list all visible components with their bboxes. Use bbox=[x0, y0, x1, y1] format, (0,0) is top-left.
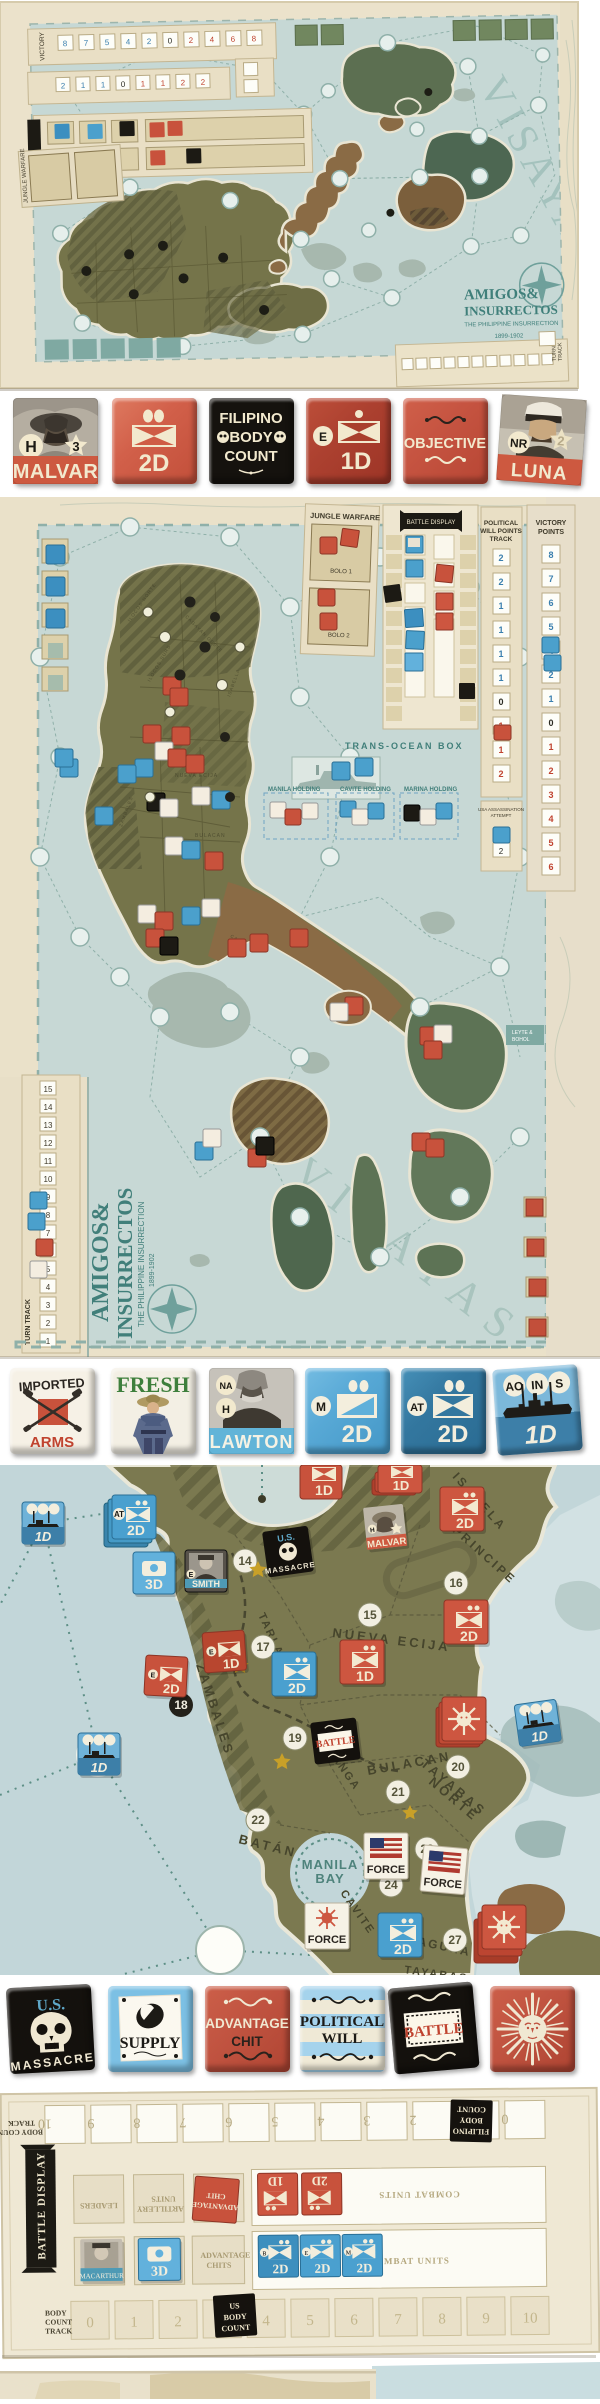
svg-text:BAY: BAY bbox=[315, 1871, 344, 1886]
svg-text:7: 7 bbox=[84, 39, 89, 48]
svg-text:2D: 2D bbox=[163, 1681, 180, 1697]
svg-text:1: 1 bbox=[81, 81, 86, 90]
svg-text:3D: 3D bbox=[145, 1576, 163, 1592]
svg-text:10: 10 bbox=[522, 2311, 537, 2327]
svg-text:AO: AO bbox=[505, 1379, 524, 1394]
svg-text:FRESH: FRESH bbox=[116, 1372, 189, 1397]
svg-text:BODY COUNT: BODY COUNT bbox=[0, 2128, 43, 2138]
svg-text:18: 18 bbox=[174, 1698, 188, 1712]
svg-text:AT: AT bbox=[410, 1402, 424, 1414]
svg-text:MASSACRE: MASSACRE bbox=[10, 2050, 95, 2074]
svg-text:TRACK: TRACK bbox=[45, 2326, 72, 2335]
svg-text:6: 6 bbox=[231, 35, 236, 44]
svg-text:2D: 2D bbox=[438, 1421, 469, 1448]
svg-text:BODY: BODY bbox=[459, 2116, 483, 2126]
svg-text:COUNT: COUNT bbox=[45, 2317, 72, 2326]
svg-text:2: 2 bbox=[498, 553, 503, 563]
svg-text:2D: 2D bbox=[288, 1680, 306, 1696]
svg-text:2: 2 bbox=[174, 2314, 182, 2330]
svg-text:BOHOL: BOHOL bbox=[512, 1037, 530, 1043]
svg-text:2: 2 bbox=[499, 847, 504, 856]
svg-text:BULACAN: BULACAN bbox=[195, 833, 226, 839]
svg-text:M: M bbox=[316, 1400, 326, 1414]
svg-text:2D: 2D bbox=[127, 1522, 145, 1538]
svg-text:19: 19 bbox=[288, 1731, 302, 1745]
svg-text:9: 9 bbox=[482, 2311, 490, 2327]
svg-text:1: 1 bbox=[498, 745, 503, 755]
svg-text:OBJECTIVE: OBJECTIVE bbox=[404, 436, 487, 452]
svg-text:2: 2 bbox=[409, 2112, 416, 2127]
svg-text:2D: 2D bbox=[356, 2260, 372, 2275]
svg-text:8: 8 bbox=[133, 2115, 140, 2130]
svg-text:ARMS: ARMS bbox=[30, 1434, 74, 1451]
svg-text:21: 21 bbox=[391, 1785, 405, 1799]
svg-text:0: 0 bbox=[501, 2111, 508, 2126]
svg-text:2: 2 bbox=[189, 36, 194, 45]
svg-text:COUNT: COUNT bbox=[456, 2105, 486, 2115]
svg-text:0: 0 bbox=[86, 2315, 94, 2331]
svg-text:3: 3 bbox=[363, 2112, 370, 2127]
svg-text:1: 1 bbox=[498, 649, 503, 659]
svg-text:POINTS: POINTS bbox=[538, 529, 564, 536]
svg-text:0: 0 bbox=[498, 697, 503, 707]
svg-text:ADVANTAGE: ADVANTAGE bbox=[205, 2016, 289, 2031]
svg-text:2: 2 bbox=[181, 78, 186, 87]
svg-text:1D: 1D bbox=[268, 2174, 284, 2189]
svg-text:CHIT: CHIT bbox=[206, 2191, 226, 2201]
svg-text:TRACK: TRACK bbox=[557, 342, 564, 361]
svg-text:MARINA HOLDING: MARINA HOLDING bbox=[404, 787, 457, 793]
svg-text:1D: 1D bbox=[530, 1728, 549, 1745]
svg-text:1: 1 bbox=[141, 79, 146, 88]
svg-text:INSURRECTOS: INSURRECTOS bbox=[113, 1188, 137, 1339]
svg-text:INSURRECTOS: INSURRECTOS bbox=[464, 302, 558, 319]
svg-text:H: H bbox=[25, 439, 37, 456]
svg-text:2D: 2D bbox=[456, 1515, 474, 1531]
svg-text:1D: 1D bbox=[524, 1420, 558, 1450]
svg-text:8: 8 bbox=[46, 1211, 51, 1220]
svg-text:NA: NA bbox=[220, 1381, 233, 1391]
svg-text:5: 5 bbox=[271, 2113, 278, 2128]
svg-text:CHITS: CHITS bbox=[206, 2261, 232, 2270]
svg-text:FORCE: FORCE bbox=[308, 1934, 347, 1946]
svg-text:BOLO 2: BOLO 2 bbox=[328, 633, 351, 640]
svg-text:BATTLE DISPLAY: BATTLE DISPLAY bbox=[407, 520, 456, 526]
svg-text:1: 1 bbox=[130, 2315, 138, 2331]
svg-text:NUEVA ECIJA: NUEVA ECIJA bbox=[175, 773, 218, 779]
svg-text:AMIGOS&: AMIGOS& bbox=[464, 286, 539, 303]
svg-text:1: 1 bbox=[498, 601, 503, 611]
svg-text:U.S.: U.S. bbox=[36, 1996, 65, 2014]
svg-text:4: 4 bbox=[317, 2113, 324, 2128]
svg-text:MANILA: MANILA bbox=[302, 1857, 359, 1872]
svg-text:E: E bbox=[319, 430, 327, 444]
svg-text:8: 8 bbox=[548, 550, 553, 560]
svg-text:15: 15 bbox=[44, 1085, 53, 1094]
svg-text:H: H bbox=[222, 1404, 230, 1416]
svg-text:LAWTON: LAWTON bbox=[210, 1432, 294, 1452]
svg-text:10: 10 bbox=[44, 1175, 53, 1184]
svg-text:4: 4 bbox=[210, 35, 215, 44]
svg-text:1: 1 bbox=[161, 79, 166, 88]
svg-text:ARTILLERY: ARTILLERY bbox=[137, 2204, 184, 2213]
svg-text:POLITICAL: POLITICAL bbox=[300, 2014, 384, 2030]
svg-text:4: 4 bbox=[126, 38, 131, 47]
svg-text:5: 5 bbox=[105, 38, 110, 47]
svg-text:15: 15 bbox=[363, 1608, 377, 1622]
svg-text:IN: IN bbox=[531, 1378, 544, 1393]
svg-text:2D: 2D bbox=[139, 450, 170, 477]
svg-text:BODY: BODY bbox=[45, 2308, 67, 2317]
svg-text:2: 2 bbox=[498, 769, 503, 779]
svg-text:FILIPINO: FILIPINO bbox=[453, 2126, 490, 2136]
svg-text:WILL: WILL bbox=[322, 2031, 363, 2047]
svg-text:4: 4 bbox=[548, 814, 553, 824]
svg-text:6: 6 bbox=[350, 2312, 358, 2328]
svg-text:POLITICAL: POLITICAL bbox=[484, 520, 518, 527]
svg-text:E: E bbox=[304, 2251, 308, 2257]
svg-text:2: 2 bbox=[46, 1319, 51, 1328]
svg-text:0: 0 bbox=[168, 36, 173, 45]
svg-text:1D: 1D bbox=[35, 1529, 52, 1544]
svg-text:8: 8 bbox=[438, 2311, 446, 2327]
svg-text:14: 14 bbox=[44, 1103, 53, 1112]
svg-text:M: M bbox=[346, 2250, 352, 2256]
svg-text:2: 2 bbox=[201, 78, 206, 87]
svg-text:8: 8 bbox=[63, 39, 68, 48]
svg-text:1899-1902: 1899-1902 bbox=[149, 1253, 156, 1287]
svg-text:B: B bbox=[262, 2251, 266, 2257]
svg-text:7: 7 bbox=[46, 1229, 51, 1238]
svg-text:0: 0 bbox=[121, 80, 126, 89]
svg-text:2D: 2D bbox=[342, 1421, 373, 1448]
svg-text:SUPPLY: SUPPLY bbox=[120, 2035, 181, 2052]
svg-text:AMIGOS&: AMIGOS& bbox=[88, 1202, 114, 1322]
svg-text:11: 11 bbox=[44, 1157, 53, 1166]
svg-text:2D: 2D bbox=[314, 2261, 330, 2276]
svg-text:3: 3 bbox=[46, 1301, 51, 1310]
svg-text:AT: AT bbox=[114, 1510, 124, 1519]
svg-text:20: 20 bbox=[451, 1760, 465, 1774]
svg-text:7: 7 bbox=[179, 2114, 186, 2129]
svg-text:2D: 2D bbox=[312, 2174, 328, 2189]
svg-text:4: 4 bbox=[262, 2313, 270, 2329]
svg-text:TRACK: TRACK bbox=[8, 2119, 35, 2128]
svg-text:3D: 3D bbox=[151, 2264, 168, 2279]
svg-text:CHIT: CHIT bbox=[231, 2034, 263, 2049]
svg-text:TURN TRACK: TURN TRACK bbox=[25, 1299, 32, 1345]
svg-text:2D: 2D bbox=[460, 1628, 478, 1644]
svg-text:COUNT: COUNT bbox=[224, 448, 277, 465]
svg-text:SMITH: SMITH bbox=[192, 1579, 220, 1589]
svg-text:NR: NR bbox=[510, 436, 529, 451]
svg-text:9: 9 bbox=[87, 2115, 94, 2130]
svg-text:1: 1 bbox=[46, 1337, 51, 1346]
svg-text:LEYTE &: LEYTE & bbox=[512, 1030, 533, 1036]
svg-text:MACARTHUR: MACARTHUR bbox=[79, 2272, 124, 2280]
svg-text:UNITS: UNITS bbox=[151, 2194, 176, 2203]
svg-text:LEADERS: LEADERS bbox=[79, 2201, 117, 2210]
svg-text:USA ASSASSINATION: USA ASSASSINATION bbox=[478, 807, 524, 812]
svg-text:2: 2 bbox=[147, 37, 152, 46]
svg-text:2: 2 bbox=[61, 81, 66, 90]
svg-text:16: 16 bbox=[449, 1576, 463, 1590]
svg-text:MALVAR: MALVAR bbox=[13, 461, 98, 483]
svg-text:2D: 2D bbox=[272, 2261, 288, 2276]
svg-text:2: 2 bbox=[557, 433, 565, 448]
svg-text:ADVANTAGE: ADVANTAGE bbox=[200, 2251, 250, 2261]
svg-text:MANILA HOLDING: MANILA HOLDING bbox=[268, 787, 321, 793]
svg-text:6: 6 bbox=[225, 2114, 232, 2129]
svg-text:7: 7 bbox=[394, 2312, 402, 2328]
svg-text:2D: 2D bbox=[394, 1941, 412, 1957]
svg-text:COMBAT UNITS: COMBAT UNITS bbox=[378, 2189, 460, 2200]
svg-text:VICTORY: VICTORY bbox=[39, 31, 47, 60]
svg-text:1D: 1D bbox=[356, 1668, 374, 1684]
svg-text:E: E bbox=[209, 1649, 214, 1656]
svg-text:5: 5 bbox=[548, 622, 553, 632]
svg-text:5: 5 bbox=[548, 838, 553, 848]
svg-text:1D: 1D bbox=[222, 1655, 240, 1671]
svg-text:1D: 1D bbox=[91, 1760, 108, 1775]
svg-text:13: 13 bbox=[44, 1121, 53, 1130]
svg-text:1D: 1D bbox=[315, 1482, 333, 1498]
svg-text:S: S bbox=[555, 1376, 564, 1391]
svg-text:12: 12 bbox=[44, 1139, 53, 1148]
svg-text:E: E bbox=[189, 1572, 194, 1579]
svg-text:17: 17 bbox=[256, 1640, 270, 1654]
svg-text:8: 8 bbox=[252, 34, 257, 43]
svg-text:1: 1 bbox=[101, 80, 106, 89]
svg-text:14: 14 bbox=[238, 1554, 252, 1568]
svg-text:1: 1 bbox=[548, 694, 553, 704]
svg-text:TRACK: TRACK bbox=[490, 536, 513, 543]
svg-text:ATTEMPT: ATTEMPT bbox=[491, 813, 512, 818]
svg-text:5: 5 bbox=[306, 2313, 314, 2329]
svg-text:1899-1902: 1899-1902 bbox=[495, 333, 524, 340]
svg-text:1D: 1D bbox=[393, 1478, 410, 1493]
svg-text:CAVITE HOLDING: CAVITE HOLDING bbox=[340, 787, 391, 793]
svg-text:6: 6 bbox=[548, 862, 553, 872]
svg-text:US: US bbox=[229, 2301, 240, 2311]
svg-text:BODY: BODY bbox=[223, 2312, 247, 2322]
svg-text:1D: 1D bbox=[341, 448, 372, 475]
svg-text:2: 2 bbox=[548, 766, 553, 776]
svg-text:4: 4 bbox=[46, 1283, 51, 1292]
svg-text:VICTORY: VICTORY bbox=[536, 520, 567, 527]
svg-text:1: 1 bbox=[498, 673, 503, 683]
svg-text:BOLO 1: BOLO 1 bbox=[330, 569, 353, 576]
svg-text:FORCE: FORCE bbox=[367, 1864, 406, 1876]
svg-text:6: 6 bbox=[548, 598, 553, 608]
svg-text:BATTLE DISPLAY: BATTLE DISPLAY bbox=[35, 2152, 48, 2260]
svg-text:FILIPINO: FILIPINO bbox=[219, 410, 283, 427]
svg-text:3: 3 bbox=[72, 439, 79, 454]
svg-text:1: 1 bbox=[548, 742, 553, 752]
svg-text:7: 7 bbox=[548, 574, 553, 584]
svg-text:COUNT: COUNT bbox=[221, 2323, 251, 2334]
svg-text:TRANS-OCEAN BOX: TRANS-OCEAN BOX bbox=[345, 741, 464, 751]
svg-text:22: 22 bbox=[251, 1813, 265, 1827]
svg-text:THE PHILIPPINE INSURRECTION: THE PHILIPPINE INSURRECTION bbox=[137, 1201, 146, 1327]
svg-text:1: 1 bbox=[498, 625, 503, 635]
svg-text:2: 2 bbox=[498, 577, 503, 587]
svg-text:27: 27 bbox=[448, 1933, 462, 1947]
svg-text:E: E bbox=[150, 1672, 155, 1679]
svg-text:0: 0 bbox=[548, 718, 553, 728]
svg-text:WILL POINTS: WILL POINTS bbox=[480, 528, 522, 535]
svg-text:3: 3 bbox=[548, 790, 553, 800]
svg-text:BODY: BODY bbox=[229, 429, 272, 446]
